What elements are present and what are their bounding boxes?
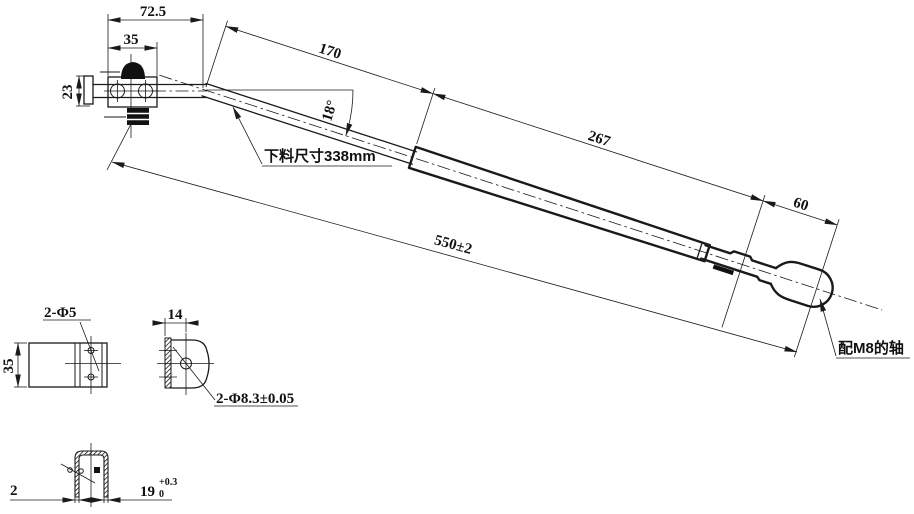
pivot-bracket bbox=[84, 54, 206, 138]
detail-side-body bbox=[171, 340, 209, 388]
cad-drawing: 170 267 60 18° 72.5 35 23 bbox=[0, 0, 914, 514]
dim-72-5-label: 72.5 bbox=[140, 4, 166, 20]
detail-section-view: 2 19 +0.3 0 bbox=[10, 443, 177, 507]
cad-drawing-canvas: 170 267 60 18° 72.5 35 23 bbox=[0, 0, 914, 514]
angle-label: 18° bbox=[319, 98, 340, 123]
leader-line bbox=[233, 107, 262, 164]
bend-angle-annotation: 18° bbox=[206, 90, 353, 136]
wall-thickness-label: 2 bbox=[10, 483, 18, 499]
ext-line bbox=[417, 88, 435, 144]
hook-insert-line bbox=[697, 244, 701, 257]
u-channel-section bbox=[75, 451, 108, 497]
ext-line bbox=[107, 124, 131, 170]
dim-267-label: 267 bbox=[586, 128, 613, 150]
holes-2phi5-label: 2-Φ5 bbox=[44, 305, 76, 321]
dim-550-label: 550±2 bbox=[433, 232, 474, 258]
axis-centerline bbox=[159, 75, 882, 310]
bracket-end-flange bbox=[84, 76, 93, 104]
leader-line bbox=[820, 299, 836, 356]
pivot-nut-cap bbox=[121, 62, 145, 79]
detail-front-view: 35 2-Φ5 bbox=[1, 305, 121, 394]
pivot-stud bbox=[127, 108, 149, 125]
hatched-flange bbox=[165, 338, 171, 388]
dim-60-label: 60 bbox=[791, 195, 810, 215]
inner-weld-mark bbox=[94, 467, 100, 473]
shaft-fit-note: 配M8的轴 bbox=[820, 299, 910, 358]
main-view: 170 267 60 18° 72.5 35 23 bbox=[60, 0, 910, 378]
detail-body bbox=[29, 343, 107, 387]
bracket-body bbox=[108, 77, 157, 107]
rod-top bbox=[206, 84, 416, 152]
tolerance-lower-label: 0 bbox=[159, 489, 164, 500]
shaft-fit-text: 配M8的轴 bbox=[838, 339, 904, 357]
inner-width-label: 19 bbox=[140, 484, 155, 500]
dim-23-label: 23 bbox=[60, 85, 76, 100]
blank-size-text: 下料尺寸338mm bbox=[264, 147, 376, 165]
detail-35-label: 35 bbox=[1, 359, 17, 374]
arm-rotated-group: 170 267 60 bbox=[137, 0, 908, 378]
dim-170-label: 170 bbox=[317, 41, 343, 63]
detail-side-view: 14 2-Φ8.3±0.05 bbox=[153, 307, 298, 407]
dim-35-label: 35 bbox=[124, 32, 139, 48]
detail-14-label: 14 bbox=[168, 307, 184, 323]
dim-line-170 bbox=[226, 26, 433, 93]
holes-2phi83-label: 2-Φ8.3±0.05 bbox=[216, 391, 294, 407]
ext-line bbox=[206, 21, 228, 88]
tolerance-upper-label: +0.3 bbox=[159, 477, 177, 488]
